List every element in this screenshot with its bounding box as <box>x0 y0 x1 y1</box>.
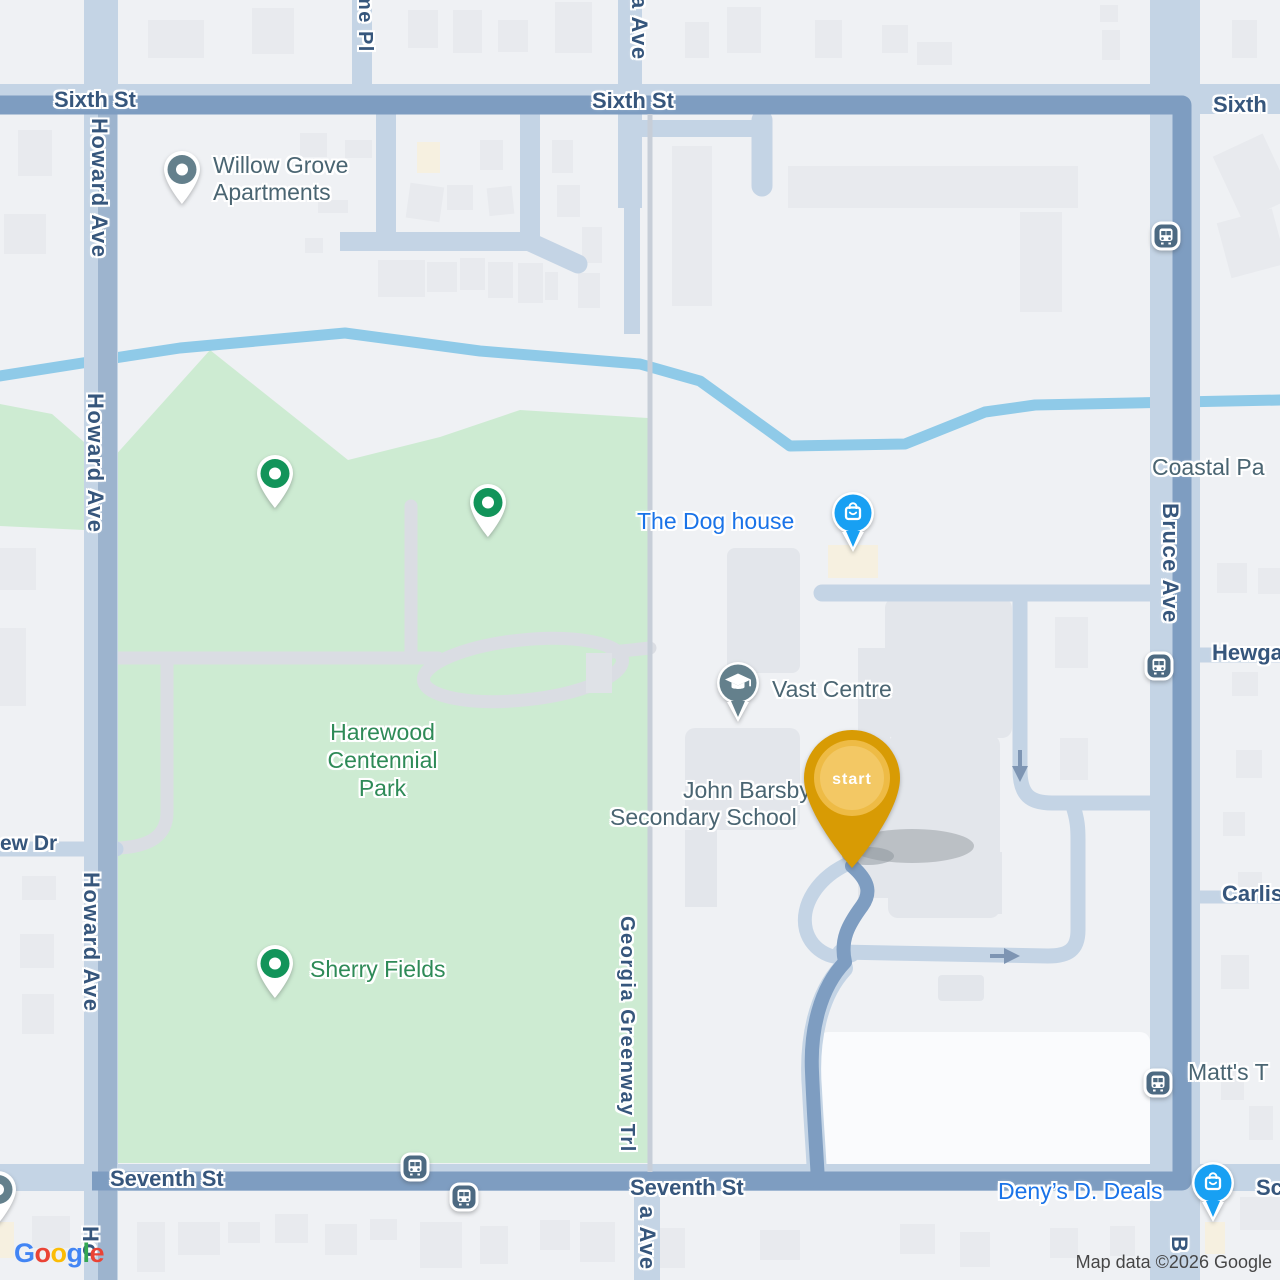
park-label-harewood: Harewood Centennial Park <box>315 718 450 802</box>
street-label-howard-ave-2: Howard Ave <box>82 393 108 534</box>
street-label-seventh-st-west: Seventh St <box>110 1166 224 1192</box>
poi-label-coastal-park: Coastal Pa <box>1152 454 1265 481</box>
poi-label-willow-grove-line2: Apartments <box>213 179 331 206</box>
google-logo[interactable]: Google <box>14 1238 104 1269</box>
bus-stop-icon[interactable] <box>1151 221 1181 251</box>
park-pin-1[interactable] <box>251 452 299 510</box>
poi-label-matts: Matt's T <box>1188 1059 1269 1086</box>
street-label-georgia-ave-south: a Ave <box>634 1206 660 1271</box>
street-label-sixth-st-mid: Sixth St <box>592 88 674 114</box>
willow-grove-pin[interactable] <box>158 148 206 206</box>
start-marker-label: start <box>832 771 872 788</box>
park-label-sherry-fields: Sherry Fields <box>310 956 445 983</box>
bus-stop-icon[interactable] <box>449 1182 479 1212</box>
sherry-fields-pin[interactable] <box>251 942 299 1000</box>
street-label-howard-ave-3: Howard Ave <box>78 872 104 1013</box>
street-label-sixth-st-west: Sixth St <box>54 87 136 113</box>
poi-label-school-line2: Secondary School <box>610 804 797 831</box>
poi-label-denys-deals: Deny’s D. Deals <box>998 1178 1162 1205</box>
street-label-georgia-greenway-trl: Georgia Greenway Trl <box>615 916 638 1153</box>
street-label-bruce-ave-partial: B <box>1166 1236 1192 1253</box>
vast-centre-pin[interactable] <box>710 659 766 725</box>
street-label-ew-dr: ew Dr <box>0 832 57 856</box>
street-label-howard-ave-1: Howard Ave <box>86 118 112 259</box>
poi-label-willow-grove-line1: Willow Grove <box>213 152 348 179</box>
map-attribution: Map data ©2026 Google <box>1076 1252 1272 1273</box>
bus-stop-icon[interactable] <box>1144 651 1174 681</box>
street-label-me-pl: me Pl <box>353 0 376 53</box>
street-label-hewgate: Hewga <box>1212 640 1280 666</box>
street-label-seventh-st-mid: Seventh St <box>630 1175 744 1201</box>
street-label-carlisle: Carlis <box>1222 881 1280 907</box>
start-marker-pin[interactable]: start <box>790 728 914 872</box>
denys-deals-pin[interactable] <box>1185 1159 1241 1225</box>
park-pin-2[interactable] <box>464 481 512 539</box>
street-label-sixth-st-east: Sixth <box>1213 92 1267 118</box>
dog-house-pin[interactable] <box>825 489 881 555</box>
edge-poi-pin[interactable] <box>0 1168 22 1226</box>
map-canvas[interactable]: Sixth St Sixth St Sixth Seventh St Seven… <box>0 0 1280 1280</box>
bus-stop-icon[interactable] <box>1143 1068 1173 1098</box>
poi-label-dog-house: The Dog house <box>637 508 794 535</box>
street-label-bruce-ave: Bruce Ave <box>1157 503 1183 624</box>
poi-label-vast-centre: Vast Centre <box>772 676 892 703</box>
street-label-georgia-ave-north: a Ave <box>626 0 652 61</box>
bus-stop-icon[interactable] <box>400 1152 430 1182</box>
street-label-sc-partial: Sc <box>1256 1175 1280 1201</box>
